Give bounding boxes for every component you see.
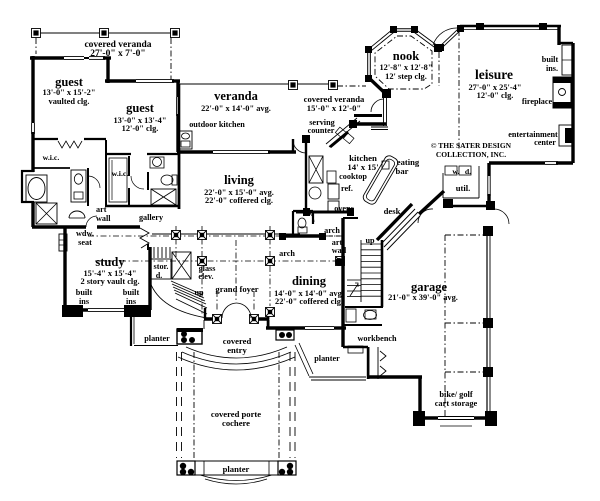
svg-text:w.i.c.: w.i.c. — [43, 153, 60, 162]
svg-text:built: built — [76, 288, 93, 297]
svg-text:cochere: cochere — [222, 418, 250, 428]
svg-text:wall: wall — [96, 214, 111, 223]
svg-text:wdw.: wdw. — [76, 229, 94, 238]
svg-text:arch: arch — [279, 249, 295, 258]
svg-text:wall: wall — [332, 246, 347, 255]
svg-text:seat: seat — [78, 238, 92, 247]
svg-text:center: center — [534, 138, 556, 147]
svg-text:built: built — [542, 55, 559, 64]
svg-text:2 story vault clg.: 2 story vault clg. — [80, 277, 139, 286]
svg-text:living: living — [224, 173, 255, 187]
svg-text:counter: counter — [308, 126, 335, 135]
svg-text:cooktop: cooktop — [339, 172, 367, 181]
svg-text:up: up — [194, 288, 204, 297]
svg-text:outdoor kitchen: outdoor kitchen — [189, 120, 245, 129]
svg-text:elev.: elev. — [198, 272, 213, 281]
svg-text:planter: planter — [144, 334, 170, 343]
svg-text:w.i.c.: w.i.c. — [112, 169, 129, 178]
svg-text:13'-0" x 15'-2": 13'-0" x 15'-2" — [42, 88, 95, 97]
svg-text:util.: util. — [456, 183, 471, 193]
svg-text:veranda: veranda — [214, 89, 259, 103]
svg-text:12' step clg.: 12' step clg. — [385, 72, 427, 81]
svg-text:art: art — [96, 205, 107, 214]
svg-text:leisure: leisure — [475, 67, 513, 82]
svg-text:study: study — [95, 255, 125, 269]
svg-text:up: up — [365, 236, 375, 245]
svg-text:27'-0" x 7'-0": 27'-0" x 7'-0" — [90, 49, 145, 59]
svg-text:22'-0" coffered clg.: 22'-0" coffered clg. — [275, 297, 343, 306]
svg-text:21'-0" x 39'-0" avg.: 21'-0" x 39'-0" avg. — [388, 293, 458, 302]
svg-text:nook: nook — [393, 49, 419, 63]
svg-text:bar: bar — [396, 166, 409, 176]
svg-text:gallery: gallery — [139, 213, 164, 222]
svg-text:dining: dining — [292, 274, 327, 288]
svg-text:22'-0" coffered clg.: 22'-0" coffered clg. — [205, 196, 273, 205]
svg-text:stor.: stor. — [154, 262, 169, 271]
svg-text:15'-0" x 12'-0": 15'-0" x 12'-0" — [307, 103, 361, 113]
svg-text:12'-8" x 12'-8": 12'-8" x 12'-8" — [379, 63, 432, 72]
svg-text:guest: guest — [55, 75, 84, 89]
svg-text:built: built — [123, 288, 140, 297]
svg-text:workbench: workbench — [357, 334, 397, 343]
svg-text:14' x 15': 14' x 15' — [347, 162, 378, 172]
svg-text:12'-0" clg.: 12'-0" clg. — [477, 91, 514, 100]
svg-text:© THE SATER DESIGN: © THE SATER DESIGN — [431, 141, 512, 150]
svg-text:fireplace: fireplace — [522, 97, 553, 106]
svg-text:planter: planter — [223, 464, 250, 474]
svg-text:ins.: ins. — [546, 64, 558, 73]
svg-text:grand foyer: grand foyer — [215, 284, 258, 294]
svg-text:planter: planter — [314, 354, 340, 363]
svg-text:arch: arch — [324, 226, 340, 235]
svg-text:guest: guest — [126, 101, 155, 115]
svg-text:ins: ins — [79, 297, 89, 306]
svg-text:garage: garage — [411, 280, 448, 294]
svg-text:ins: ins — [126, 297, 136, 306]
svg-text:desk: desk — [384, 206, 401, 216]
svg-text:vaulted clg.: vaulted clg. — [49, 97, 90, 106]
svg-text:bike/ golf: bike/ golf — [439, 390, 472, 399]
svg-text:entry: entry — [227, 345, 247, 355]
svg-text:ref.: ref. — [341, 184, 353, 193]
svg-text:cart storage: cart storage — [435, 399, 478, 408]
svg-text:COLLECTION, INC.: COLLECTION, INC. — [436, 150, 506, 159]
svg-text:22'-0" x 14'-0" avg.: 22'-0" x 14'-0" avg. — [201, 104, 271, 113]
svg-text:12'-0" clg.: 12'-0" clg. — [122, 124, 159, 133]
